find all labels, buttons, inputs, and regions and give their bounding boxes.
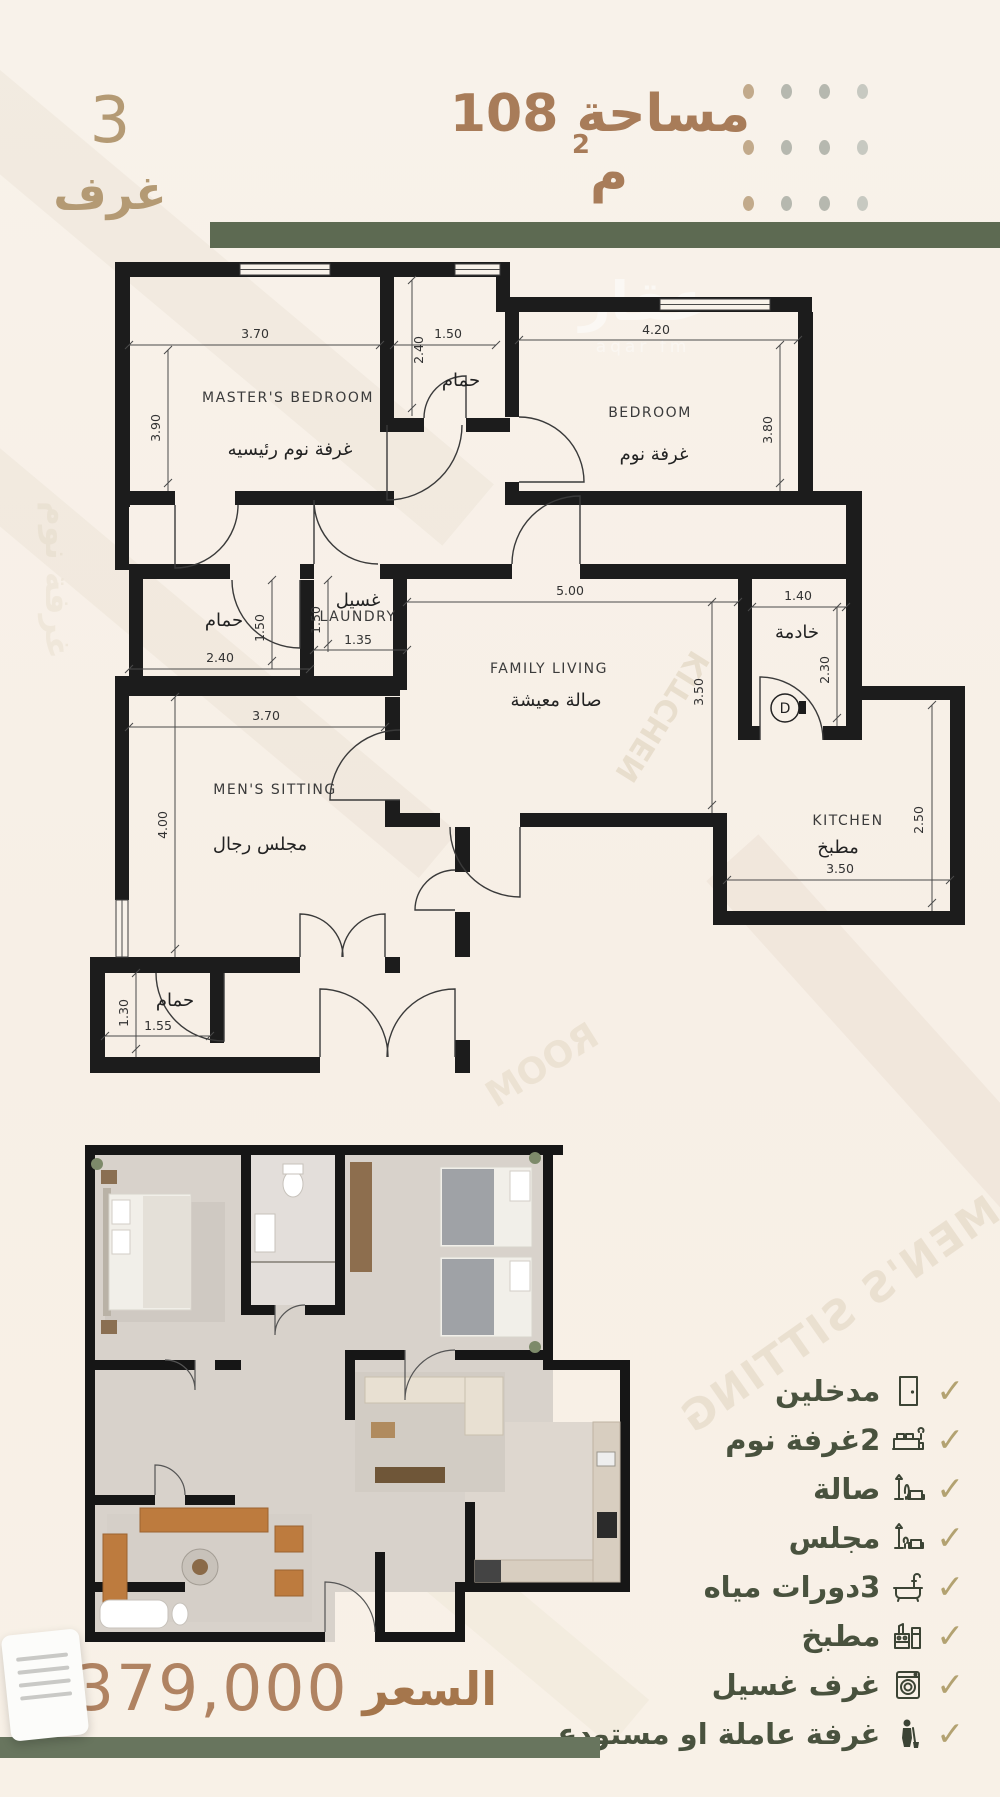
dim-maid-w: 1.40 xyxy=(784,588,812,603)
room-label-maid-ar: خادمة xyxy=(775,622,819,643)
room-label-laundry-ar: غسيل xyxy=(336,590,381,611)
bg-watermark-text: غرفة نوم xyxy=(37,501,77,659)
rooms-count: 3 xyxy=(55,84,165,158)
room-label-bedroom-en: BEDROOM xyxy=(608,405,692,421)
dim-kitchen-h: 2.50 xyxy=(911,806,926,834)
room-label-family-en: FAMILY LIVING xyxy=(490,661,608,677)
dim-master-w: 3.70 xyxy=(241,326,269,341)
check-icon: ✓ xyxy=(936,1717,964,1750)
room-label-bath2-ar: حمام xyxy=(205,610,243,631)
feature-label: مطبخ xyxy=(801,1619,880,1653)
dim-bath1-h: 2.40 xyxy=(411,336,426,364)
bathtub-icon xyxy=(890,1569,926,1605)
door-symbol: D xyxy=(771,694,806,722)
check-icon: ✓ xyxy=(936,1668,964,1701)
sofa-lamp-icon xyxy=(890,1471,926,1507)
dim-bath1-w: 1.50 xyxy=(434,326,462,341)
armchair-lamp-icon xyxy=(890,1520,926,1556)
room-label-laundry-en: LAUNDRY xyxy=(319,609,396,625)
worker-icon xyxy=(890,1716,926,1752)
check-icon: ✓ xyxy=(936,1472,964,1505)
feature-item-bedrooms: ✓ 2غرفة نوم xyxy=(725,1421,964,1458)
dim-bath3-w: 1.55 xyxy=(144,1018,172,1033)
bed-icon xyxy=(890,1422,926,1458)
feature-item-maid-room: ✓ غرفة عاملة او مستودع xyxy=(557,1715,964,1752)
check-icon: ✓ xyxy=(936,1423,964,1456)
area-title-superscript: 2 xyxy=(572,130,590,160)
room-label-bath3-ar: حمام xyxy=(156,990,194,1011)
feature-item-hall: ✓ صالة xyxy=(813,1470,964,1507)
stove-icon xyxy=(890,1618,926,1654)
dim-master-h: 3.90 xyxy=(148,414,163,442)
check-icon: ✓ xyxy=(936,1570,964,1603)
dim-mens-h: 4.00 xyxy=(155,811,170,839)
dim-maid-h: 2.30 xyxy=(817,656,832,684)
feature-item-kitchen: ✓ مطبخ xyxy=(801,1617,964,1654)
feature-item-entrances: ✓ مدخلين xyxy=(775,1372,964,1409)
room-label-bedroom-ar: غرفة نوم xyxy=(620,444,689,465)
top-divider-bar xyxy=(210,222,1000,248)
feature-label: 3دورات مياه xyxy=(704,1570,881,1604)
room-label-mens-ar: مجلس رجال xyxy=(213,834,307,855)
dim-laundry-w: 1.35 xyxy=(344,632,372,647)
rendered-floorplan xyxy=(45,1122,637,1657)
check-icon: ✓ xyxy=(936,1619,964,1652)
bottom-divider-bar xyxy=(0,1737,600,1758)
room-label-kitchen-ar: مطبخ xyxy=(817,837,858,858)
area-title: مساحة 108 م2 xyxy=(420,84,780,204)
room-label-kitchen-en: KITCHEN xyxy=(812,813,883,829)
price-label: السعر xyxy=(363,1662,497,1716)
room-label-bath1-ar: حمام xyxy=(442,370,480,391)
dim-bath2-h: 1.50 xyxy=(252,614,267,642)
dim-bath2-w: 2.40 xyxy=(206,650,234,665)
door-symbol-label: D xyxy=(780,701,791,717)
dim-kitchen-w: 3.50 xyxy=(826,861,854,876)
feature-item-bathrooms: ✓ 3دورات مياه xyxy=(704,1568,964,1605)
dim-family-h: 3.50 xyxy=(691,678,706,706)
room-label-family-ar: صالة معيشة xyxy=(510,690,601,711)
dim-bedroom-w: 4.20 xyxy=(642,322,670,337)
check-icon: ✓ xyxy=(936,1521,964,1554)
price-value: 379,000 xyxy=(74,1652,349,1725)
flyer-canvas: MEN'S SITTING KITCHEN ROOM غرفة نوم مساح… xyxy=(0,0,1000,1797)
feature-label: مدخلين xyxy=(775,1374,880,1408)
dim-bedroom-h: 3.80 xyxy=(760,416,775,444)
dim-mens-w: 3.70 xyxy=(252,708,280,723)
room-label-master-ar: غرفة نوم رئيسيه xyxy=(228,439,353,460)
feature-label: مجلس xyxy=(789,1521,881,1555)
washing-machine-icon xyxy=(890,1667,926,1703)
feature-list: ✓ مدخلين ✓ 2غرفة نوم ✓ صالة ✓ xyxy=(557,1372,964,1752)
door-icon xyxy=(890,1373,926,1409)
bw-floorplan: عقار aqar fm xyxy=(80,250,965,1075)
feature-label: غرفة عاملة او مستودع xyxy=(557,1717,880,1751)
rooms-count-label: غرف xyxy=(30,166,190,220)
check-icon: ✓ xyxy=(936,1374,964,1407)
dim-family-w: 5.00 xyxy=(556,583,584,598)
feature-label: غرف غسيل xyxy=(712,1668,881,1702)
area-title-text: مساحة 108 م xyxy=(450,84,750,204)
feature-label: 2غرفة نوم xyxy=(725,1423,880,1457)
room-label-master-en: MASTER'S BEDROOM xyxy=(202,390,374,406)
feature-item-majlis: ✓ مجلس xyxy=(789,1519,964,1556)
note-card xyxy=(1,1628,90,1742)
room-label-mens-en: MEN'S SITTING xyxy=(213,782,336,798)
feature-item-laundry: ✓ غرف غسيل xyxy=(712,1666,964,1703)
feature-label: صالة xyxy=(813,1472,880,1506)
dim-bath3-h: 1.30 xyxy=(116,999,131,1027)
